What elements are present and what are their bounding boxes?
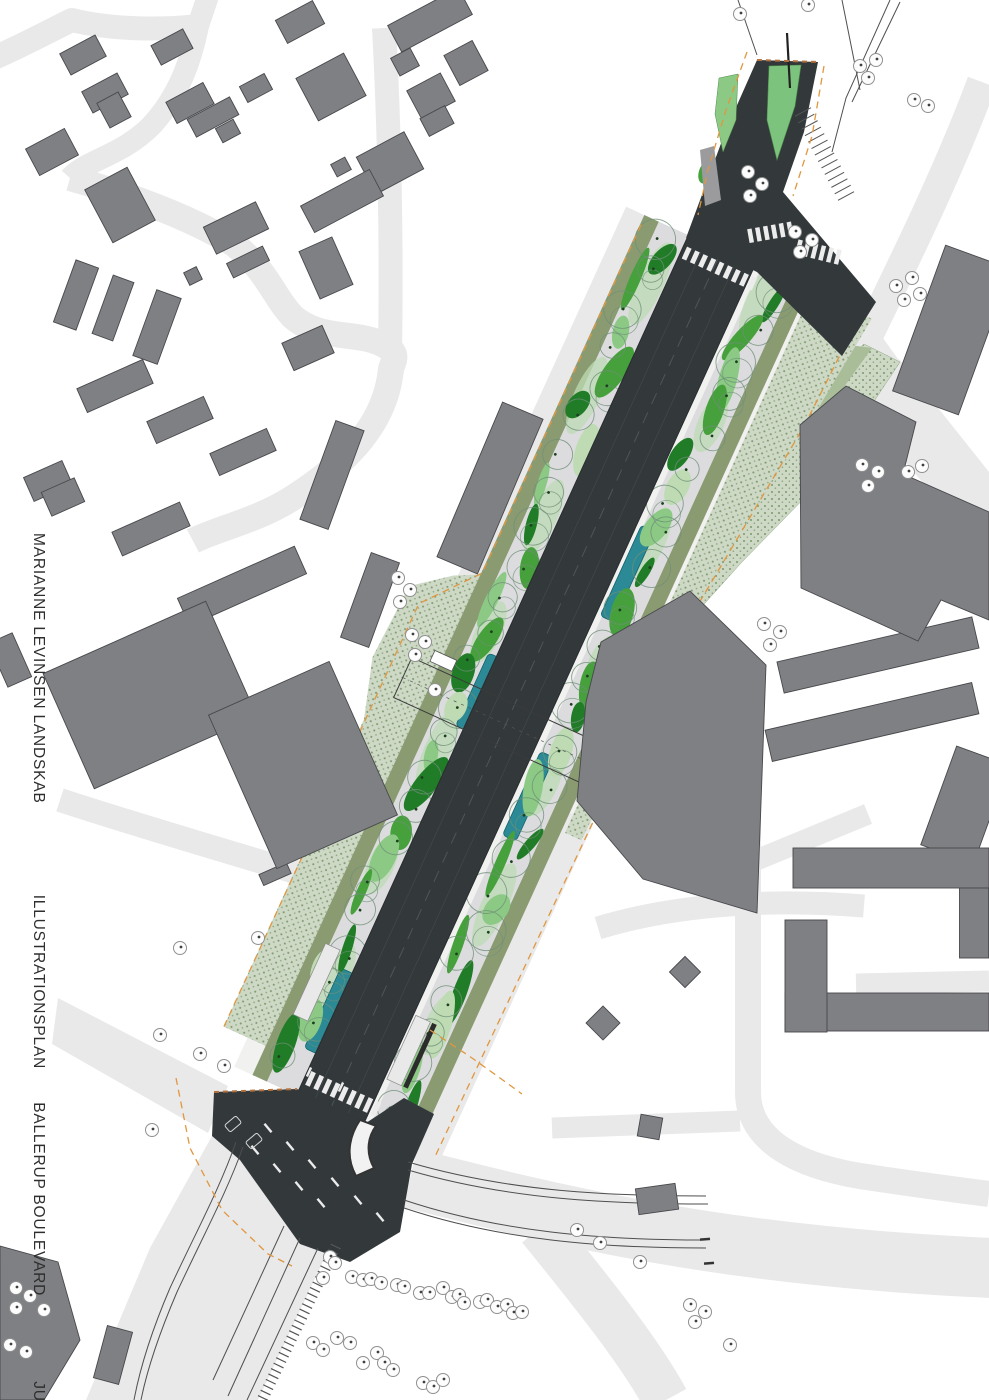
site-plan-map <box>0 0 989 1400</box>
building <box>147 396 213 443</box>
building <box>184 267 203 286</box>
building <box>112 502 190 556</box>
building <box>635 1183 678 1214</box>
building <box>444 40 488 85</box>
building <box>921 746 989 864</box>
building <box>275 1 324 44</box>
firm-name: MARIANNE LEVINSEN LANDSKAB <box>29 533 47 804</box>
building <box>777 617 979 693</box>
building <box>793 848 989 888</box>
project-title: BALLERUP BOULEVARD <box>29 1102 47 1296</box>
building <box>53 260 98 330</box>
illustration-plan-sheet: MARIANNE LEVINSEN LANDSKAB ILLUSTRATIONS… <box>0 0 989 1400</box>
ballerup-boulevard-plan-svg <box>0 0 989 1400</box>
building <box>800 386 989 641</box>
building <box>577 591 766 913</box>
drawing-date: JULI 2017 <box>29 1381 47 1400</box>
building <box>239 73 272 102</box>
building <box>296 53 366 121</box>
building <box>960 888 989 958</box>
building <box>77 359 153 412</box>
building <box>210 428 276 475</box>
building <box>301 169 384 232</box>
building <box>60 35 107 75</box>
building <box>299 237 353 299</box>
building <box>785 920 827 1032</box>
building <box>637 1114 662 1139</box>
building <box>43 601 257 789</box>
drawing-type: ILLUSTRATIONSPLAN <box>29 895 47 1069</box>
building <box>669 956 700 987</box>
building <box>92 275 134 341</box>
building <box>388 0 473 52</box>
building <box>586 1006 620 1040</box>
building <box>331 157 352 177</box>
titleblock: MARIANNE LEVINSEN LANDSKAB ILLUSTRATIONS… <box>25 0 47 1400</box>
building <box>133 290 181 365</box>
building <box>765 683 979 762</box>
